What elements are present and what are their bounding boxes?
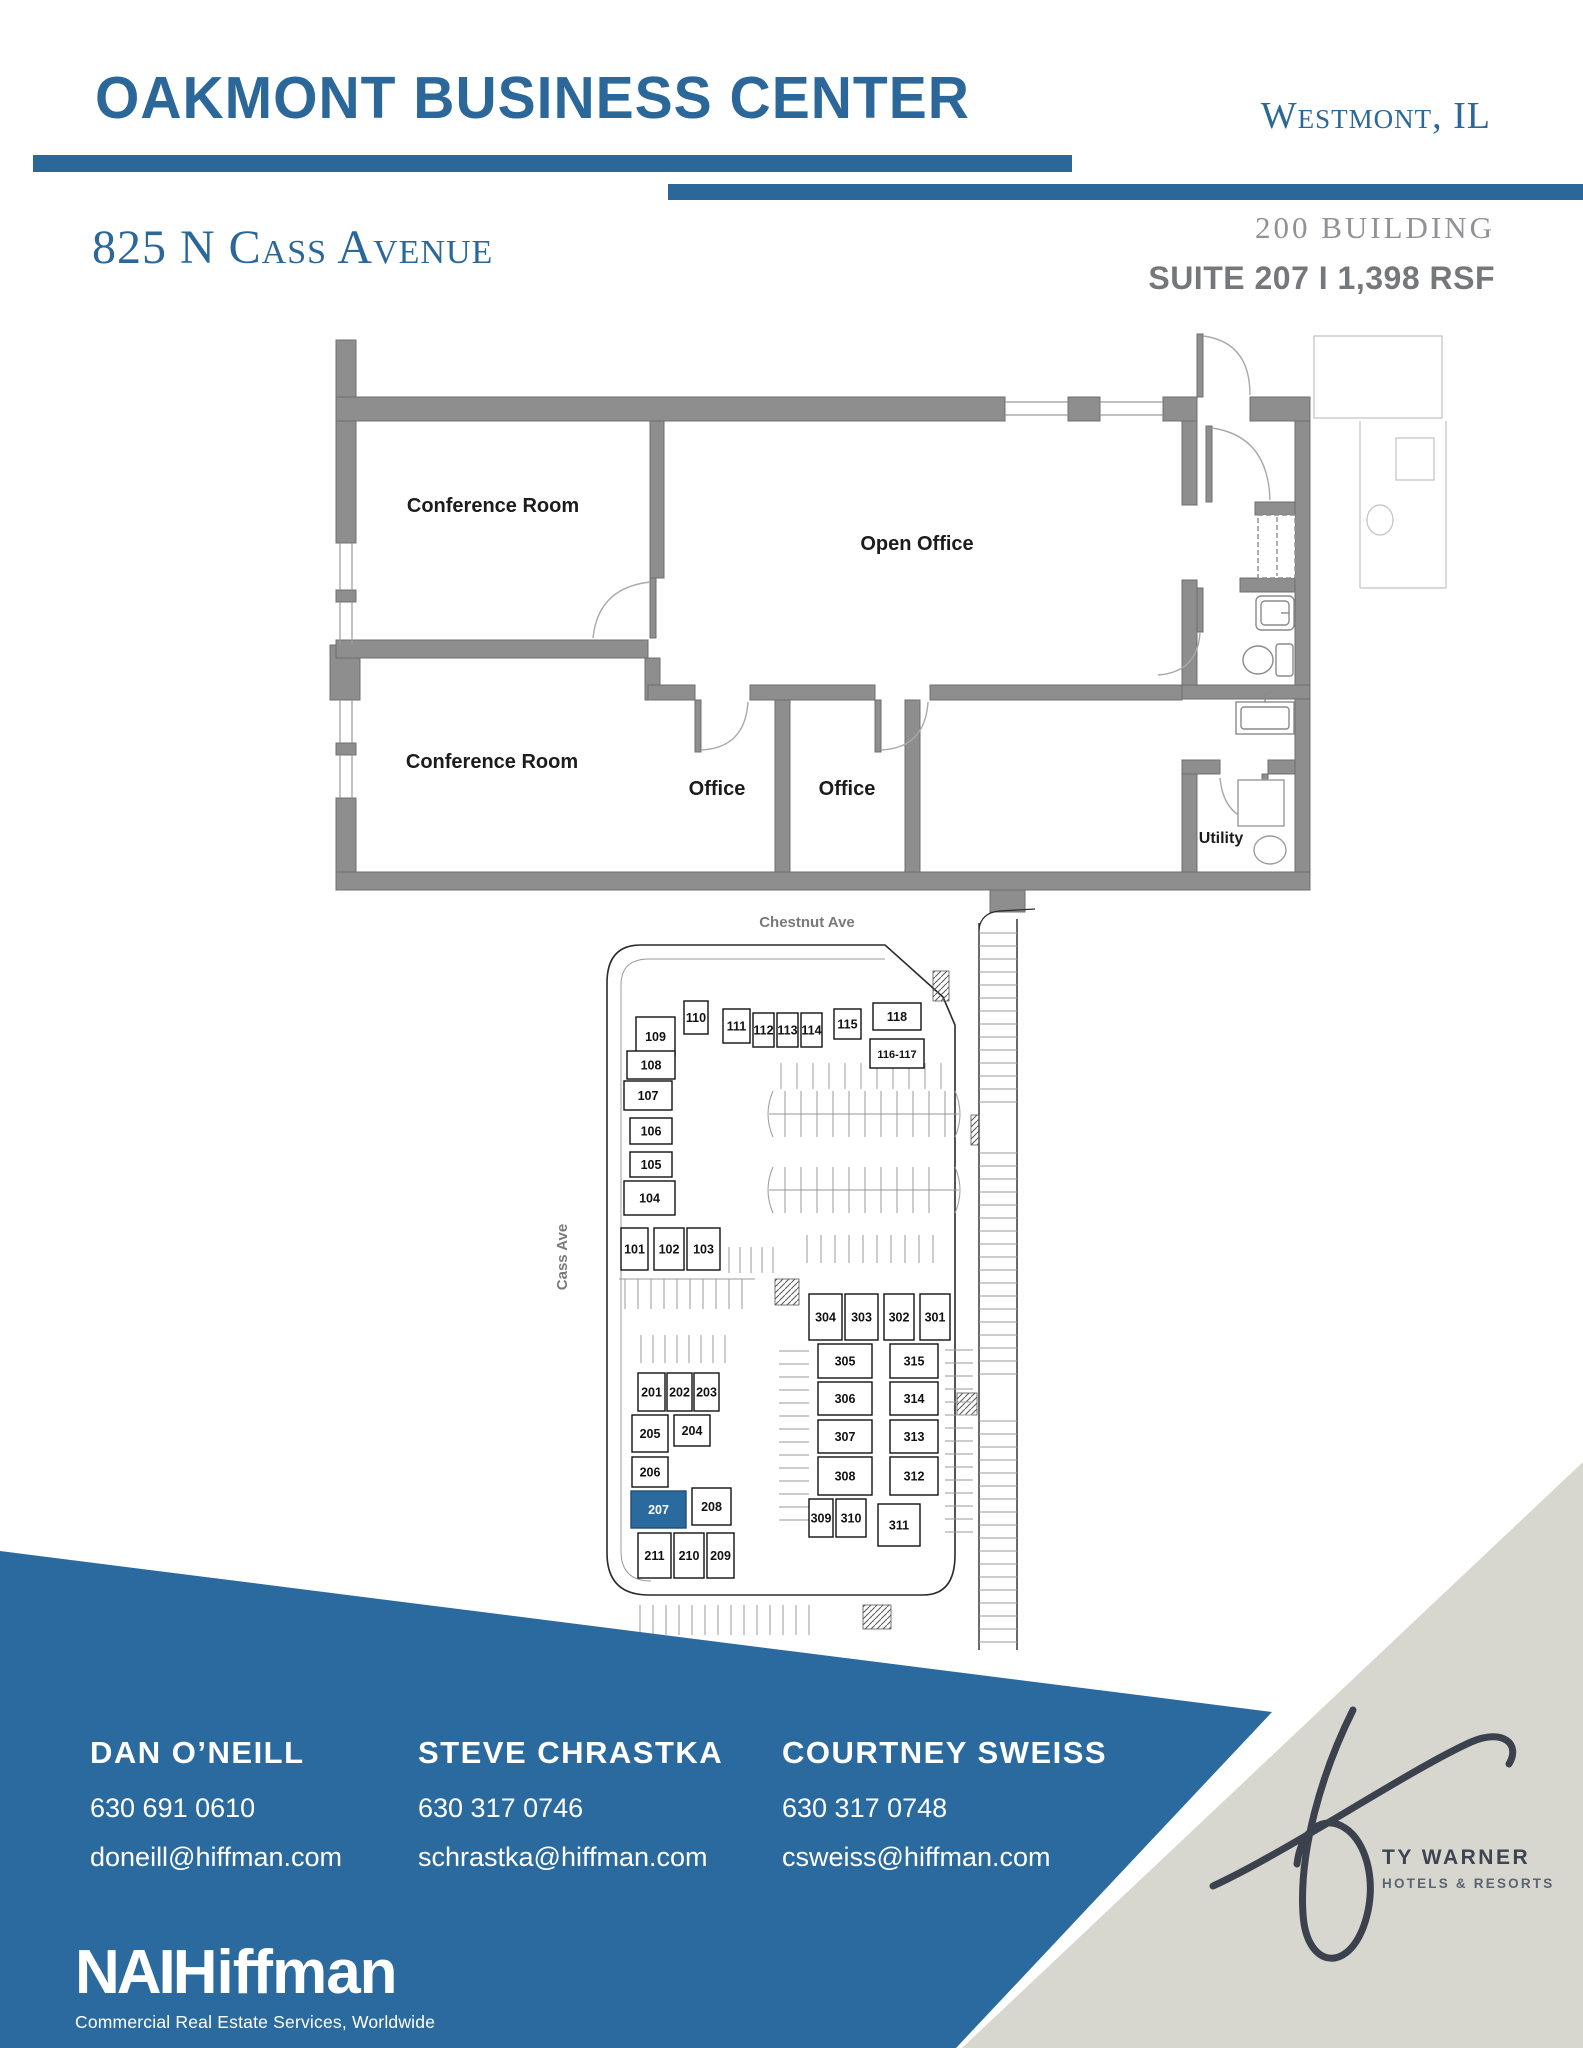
page-title: OAKMONT BUSINESS CENTER [95,64,970,133]
svg-text:308: 308 [835,1470,856,1484]
svg-text:112: 112 [753,1024,773,1038]
svg-text:116-117: 116-117 [877,1049,916,1061]
site-unit-105: 105 [630,1152,672,1177]
site-unit-307: 307 [818,1420,872,1453]
svg-text:209: 209 [710,1549,731,1563]
site-unit-311: 311 [878,1504,920,1546]
svg-text:208: 208 [701,1500,722,1514]
room-label: Conference Room [406,751,578,773]
contact-email: doneill@hiffman.com [90,1842,342,1873]
site-unit-312: 312 [890,1457,938,1495]
site-unit-109: 109 [636,1017,675,1056]
site-unit-103: 103 [687,1228,720,1270]
nai-logo-suffix: Hiffman [173,1938,397,2007]
svg-text:210: 210 [679,1549,700,1563]
site-unit-116-117: 116-117 [870,1039,924,1068]
site-unit-203: 203 [694,1373,719,1411]
site-unit-305: 305 [818,1344,872,1378]
site-unit-210: 210 [674,1533,704,1578]
contact-phone: 630 317 0746 [418,1793,723,1824]
nai-hiffman-logo: NAIHiffman Commercial Real Estate Servic… [75,1942,435,2033]
svg-text:313: 313 [904,1430,925,1444]
contact-name: DAN O’NEILL [90,1735,342,1771]
svg-text:303: 303 [851,1311,872,1325]
ty-warner-name: TY WARNER [1382,1846,1554,1870]
site-unit-301: 301 [920,1294,950,1340]
site-unit-101: 101 [621,1228,648,1270]
svg-text:204: 204 [682,1424,703,1438]
contact-card: STEVE CHRASTKA 630 317 0746 schrastka@hi… [418,1735,723,1873]
site-unit-113: 113 [777,1013,798,1047]
site-unit-206: 206 [632,1457,668,1487]
svg-text:207: 207 [648,1503,669,1517]
room-label: Office [689,778,746,800]
svg-text:102: 102 [659,1243,680,1257]
svg-text:109: 109 [645,1030,666,1044]
svg-text:118: 118 [887,1010,907,1024]
site-unit-315: 315 [890,1344,938,1378]
site-unit-308: 308 [818,1457,872,1495]
street-label-chestnut: Chestnut Ave [759,914,855,931]
svg-text:107: 107 [638,1089,659,1103]
svg-text:111: 111 [727,1020,747,1034]
site-unit-112: 112 [753,1013,774,1047]
site-unit-310: 310 [836,1499,866,1537]
svg-text:105: 105 [641,1158,662,1172]
room-label: Conference Room [407,495,579,517]
accent-bar-primary [33,155,1072,172]
site-unit-306: 306 [818,1382,872,1415]
svg-text:314: 314 [904,1392,925,1406]
site-unit-107: 107 [624,1081,672,1110]
svg-text:311: 311 [889,1519,909,1533]
nai-logo-prefix: NAI [75,1938,173,2007]
floor-plan: Conference RoomOpen OfficeConference Roo… [300,320,1460,920]
svg-text:103: 103 [693,1243,714,1257]
svg-text:305: 305 [835,1355,856,1369]
site-unit-204: 204 [674,1415,710,1446]
site-unit-309: 309 [809,1499,833,1537]
svg-text:101: 101 [624,1243,645,1257]
site-unit-110: 110 [684,1001,708,1034]
suite-rsf-label: SUITE 207 I 1,398 RSF [1148,260,1495,297]
site-unit-115: 115 [834,1009,861,1039]
svg-text:304: 304 [815,1311,836,1325]
svg-text:307: 307 [835,1430,856,1444]
contact-name: STEVE CHRASTKA [418,1735,723,1771]
site-unit-118: 118 [873,1003,921,1030]
svg-text:114: 114 [801,1024,821,1038]
site-unit-201: 201 [638,1373,665,1411]
svg-text:202: 202 [669,1386,690,1400]
contact-card: COURTNEY SWEISS 630 317 0748 csweiss@hif… [782,1735,1107,1873]
address-title: 825 N Cass Avenue [92,220,493,275]
contact-email: csweiss@hiffman.com [782,1842,1107,1873]
site-unit-313: 313 [890,1420,938,1453]
svg-text:113: 113 [777,1024,797,1038]
contact-email: schrastka@hiffman.com [418,1842,723,1873]
site-unit-111: 111 [723,1009,750,1043]
contact-phone: 630 691 0610 [90,1793,342,1824]
svg-text:110: 110 [686,1011,706,1025]
street-label-cass: Cass Ave [554,1224,571,1290]
contact-phone: 630 317 0748 [782,1793,1107,1824]
svg-text:115: 115 [837,1018,857,1032]
svg-text:309: 309 [811,1512,832,1526]
svg-text:206: 206 [640,1466,661,1480]
ty-warner-logo: TY WARNER HOTELS & RESORTS [1382,1846,1554,1891]
site-unit-202: 202 [667,1373,692,1411]
svg-text:211: 211 [644,1549,664,1563]
site-unit-304: 304 [809,1294,842,1340]
site-unit-302: 302 [884,1294,914,1340]
svg-text:201: 201 [641,1386,662,1400]
site-unit-303: 303 [845,1294,878,1340]
svg-text:310: 310 [841,1512,862,1526]
site-unit-114: 114 [801,1013,822,1047]
site-unit-209: 209 [707,1533,734,1578]
location-label: Westmont, IL [1261,94,1491,138]
site-unit-207: 207 [631,1491,686,1528]
contact-name: COURTNEY SWEISS [782,1735,1107,1771]
room-label: Office [819,778,876,800]
svg-text:301: 301 [925,1311,946,1325]
accent-bar-secondary [668,184,1583,200]
contact-card: DAN O’NEILL 630 691 0610 doneill@hiffman… [90,1735,342,1873]
room-label: Utility [1199,830,1244,847]
svg-text:205: 205 [640,1427,661,1441]
building-label: 200 BUILDING [1255,210,1495,246]
site-unit-104: 104 [624,1181,675,1215]
site-unit-205: 205 [632,1415,668,1452]
site-unit-208: 208 [692,1488,731,1525]
ty-warner-subtitle: HOTELS & RESORTS [1382,1876,1554,1891]
site-unit-102: 102 [654,1228,684,1270]
svg-text:302: 302 [889,1311,910,1325]
svg-text:104: 104 [639,1192,660,1206]
svg-text:106: 106 [641,1125,662,1139]
svg-text:306: 306 [835,1392,856,1406]
svg-text:312: 312 [904,1470,925,1484]
site-unit-106: 106 [630,1118,672,1144]
site-unit-108: 108 [627,1051,675,1079]
flyer-page: OAKMONT BUSINESS CENTER Westmont, IL 825… [0,0,1583,2048]
svg-text:108: 108 [641,1059,662,1073]
svg-text:203: 203 [696,1386,717,1400]
site-plan: Chestnut Ave Cass Ave [545,905,1035,1650]
svg-text:315: 315 [904,1355,925,1369]
site-unit-211: 211 [638,1533,671,1578]
room-label: Open Office [860,533,973,555]
site-unit-314: 314 [890,1382,938,1415]
nai-tagline: Commercial Real Estate Services, Worldwi… [75,2012,435,2033]
